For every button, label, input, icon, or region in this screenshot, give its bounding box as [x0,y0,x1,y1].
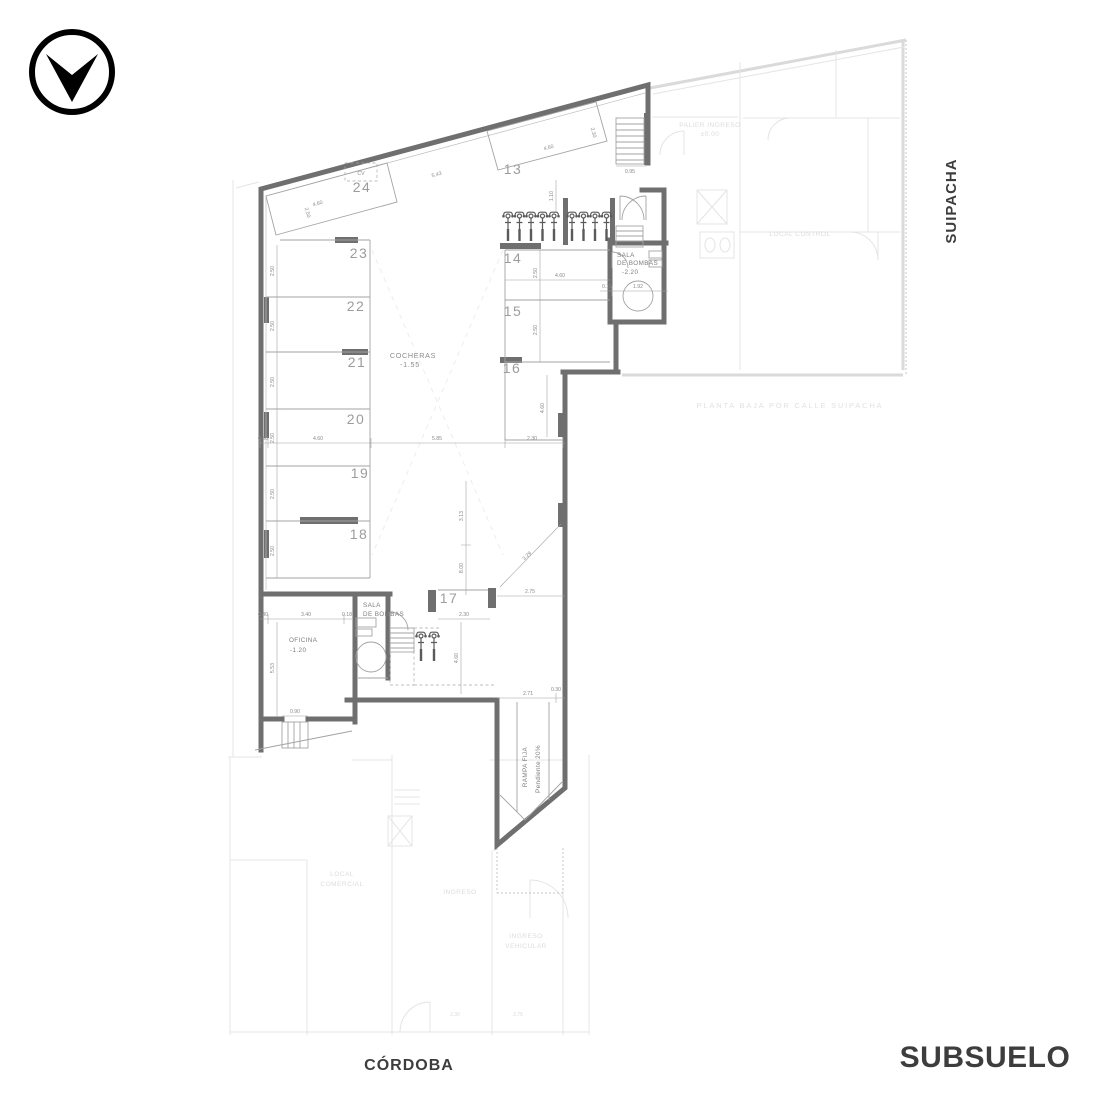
dim-label: 2.50 [270,433,276,443]
dim-label: 5.53 [270,663,276,673]
dim-label: 2.50 [270,377,276,387]
dim-label: 1.10 [549,191,555,201]
faded-local-control-label: LOCAL CONTROL [769,231,830,238]
dim-label: 4.60 [313,436,323,442]
cocheras-label: COCHERAS [390,351,436,360]
dim-label: 0.18 [342,612,352,618]
main-walls [255,85,666,845]
titles: SUBSUELO CÓRDOBA SUIPACHA [364,158,1070,1074]
faded-ingreso-vehicular-label-2: VEHICULAR [505,943,547,950]
oficina-level: -1.20 [290,647,306,654]
rampa-slope-label: Pendiente 20% [535,745,542,793]
sala-bombas-top-label-1: SALA [617,252,635,259]
cv-label: CV [357,171,365,177]
faded-local-comercial-label-1: LOCAL [330,871,354,878]
faded-ingreso-label: INGRESO [443,889,476,896]
dim-label: 2.30 [459,612,469,618]
dim-label: 5.43 [431,171,442,180]
floorplan-drawing: PALIER INGRESO ±0.00 LOCAL CONTROL PLANT… [0,0,1100,1100]
dim-label: 1.92 [633,284,643,290]
dim-label: 2.30 [589,127,598,138]
dim-label: 4.60 [312,200,323,209]
parking-space-15: 15 [504,303,523,319]
floorplan-page: PALIER INGRESO ±0.00 LOCAL CONTROL PLANT… [0,0,1100,1100]
dim-label: 0.30 [258,612,268,618]
parking-space-24: 24 [353,179,372,195]
bike-pair-center [415,632,440,661]
stair-center [390,628,495,685]
bike-row-top [502,212,612,241]
double-door-top-right [620,196,646,220]
dim-label: 0.15 [602,284,612,290]
dim-label: 8.00 [459,563,465,573]
street-label-cordoba: CÓRDOBA [364,1055,454,1074]
dim-label: 0.90 [290,709,300,715]
pump-room-bottom-fixtures [356,612,408,678]
cocheras-level: -1.55 [400,360,420,369]
dim-label: 4.60 [555,273,565,279]
parking-space-22: 22 [347,298,366,314]
parking-space-16: 16 [503,360,522,376]
dim-label: 0.95 [625,169,635,175]
ramp [500,702,562,820]
parking-space-17: 17 [440,590,459,606]
dim-label: 3.40 [301,612,311,618]
dim-label: 4.60 [540,403,546,413]
dim-label: 2.50 [533,325,539,335]
dim-label: 3.29 [522,551,534,562]
sala-bombas-bottom-label-1: SALA [363,602,381,609]
sala-bombas-bottom-label-2: DE BOMBAS [363,611,404,618]
street-label-suipacha: SUIPACHA [943,158,960,243]
faded-palier-label: PALIER INGRESO [679,122,740,129]
faded-dim: 2.30 [450,1012,460,1018]
faded-planta-baja-label: PLANTA BAJA POR CALLE SUIPACHA [697,401,884,410]
dim-label: 2.30 [527,436,537,442]
dim-label: 2.75 [525,589,535,595]
dim-label: 5.85 [432,436,442,442]
faded-dim: 2.75 [513,1012,523,1018]
dim-label: 0.30 [258,436,268,442]
oficina-label: OFICINA [289,637,318,644]
dim-label: 2.71 [523,691,533,697]
parking-space-23: 23 [350,245,369,261]
dim-label: 2.50 [303,207,312,218]
sala-bombas-top-level: -2.20 [622,269,638,276]
faded-local-comercial-label-2: COMERCIAL [320,881,363,888]
dim-label: 2.50 [270,489,276,499]
dim-label: 2.50 [270,266,276,276]
stair-top-right [616,118,644,164]
parking-space-13: 13 [504,161,523,177]
dim-label: 4.60 [454,653,460,663]
down-arrow-logo [32,32,112,112]
parking-space-19: 19 [351,465,370,481]
plan-title: SUBSUELO [900,1041,1071,1074]
parking-space-14: 14 [504,250,523,266]
parking-space-20: 20 [347,411,366,427]
faded-ingreso-vehicular-label-1: INGRESO [509,933,542,940]
dim-label: 0.30 [551,687,561,693]
dim-label: 2.50 [270,546,276,556]
dim-label: 2.50 [270,321,276,331]
dim-label: 3.13 [459,511,465,521]
faded-palier-level: ±0.00 [701,131,720,138]
sala-bombas-top-label-2: DE BOMBAS [617,260,658,267]
dim-label: 4.60 [543,144,554,153]
rampa-label: RAMPA FIJA [522,746,529,787]
parking-space-21: 21 [348,354,367,370]
dim-label: 2.50 [533,268,539,278]
parking-space-18: 18 [350,526,369,542]
